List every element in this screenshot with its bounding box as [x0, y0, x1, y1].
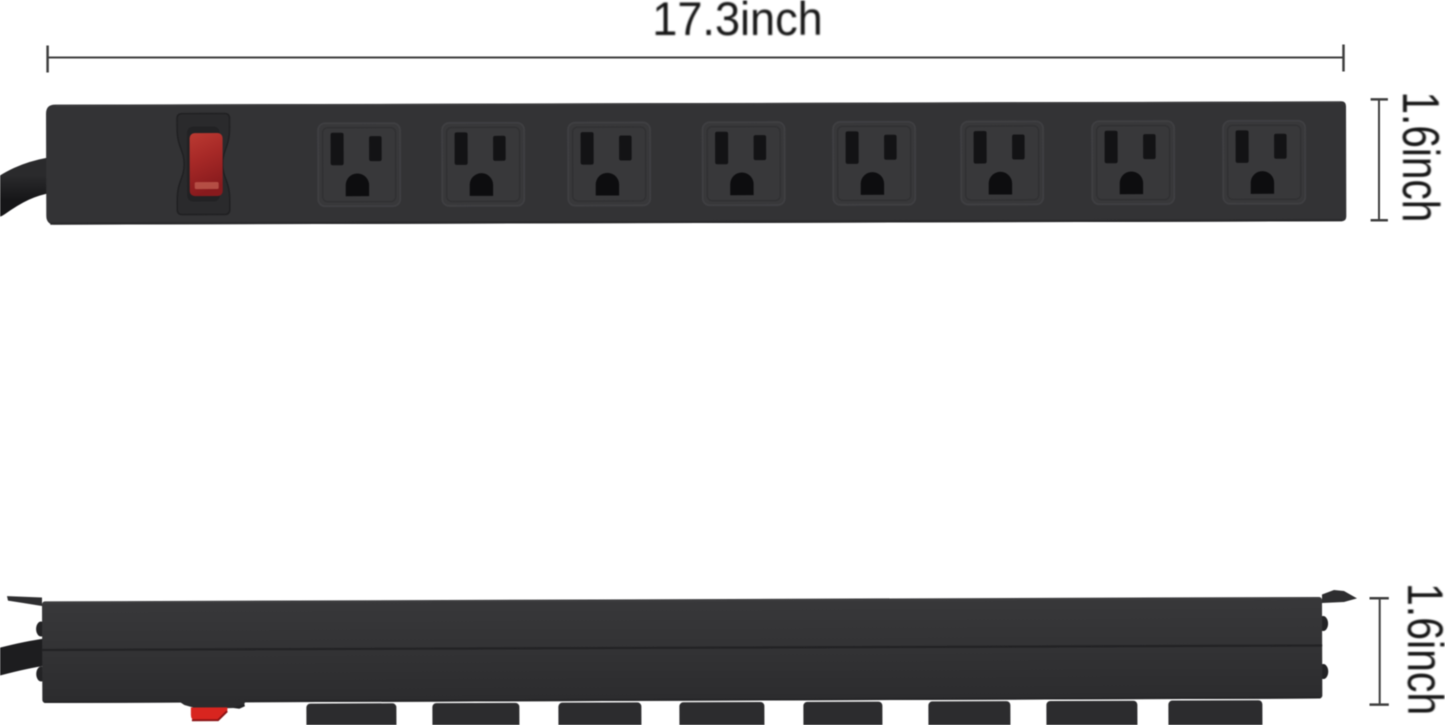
svg-text:1.6inch: 1.6inch: [1397, 583, 1445, 715]
svg-text:1.6inch: 1.6inch: [1392, 92, 1445, 223]
svg-text:17.3inch: 17.3inch: [652, 0, 823, 45]
